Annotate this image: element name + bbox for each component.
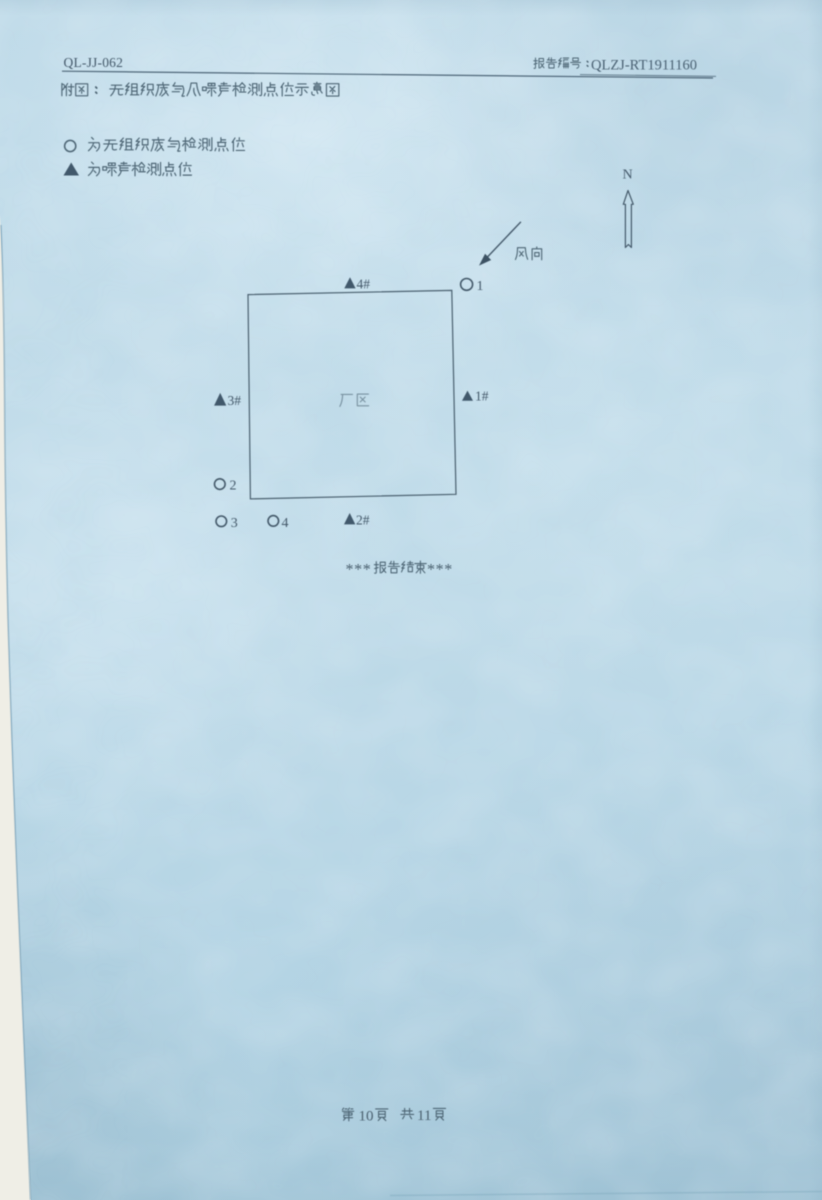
svg-text:4: 4 (282, 516, 289, 531)
svg-text:QLZJ-RT1911160: QLZJ-RT1911160 (591, 58, 697, 74)
svg-text:1#: 1# (475, 389, 489, 404)
svg-text:***: *** (427, 562, 453, 579)
svg-text:2: 2 (230, 479, 237, 494)
svg-text:4#: 4# (357, 277, 371, 292)
svg-text:11: 11 (417, 1108, 431, 1124)
svg-text:1: 1 (477, 279, 484, 294)
svg-text:10: 10 (359, 1109, 374, 1125)
svg-text:2#: 2# (356, 513, 370, 528)
svg-text:QL-JJ-062: QL-JJ-062 (64, 55, 124, 70)
svg-text:3#: 3# (228, 393, 242, 408)
svg-text:3: 3 (231, 516, 238, 531)
svg-text:***: *** (346, 562, 372, 579)
svg-text:N: N (623, 168, 633, 183)
